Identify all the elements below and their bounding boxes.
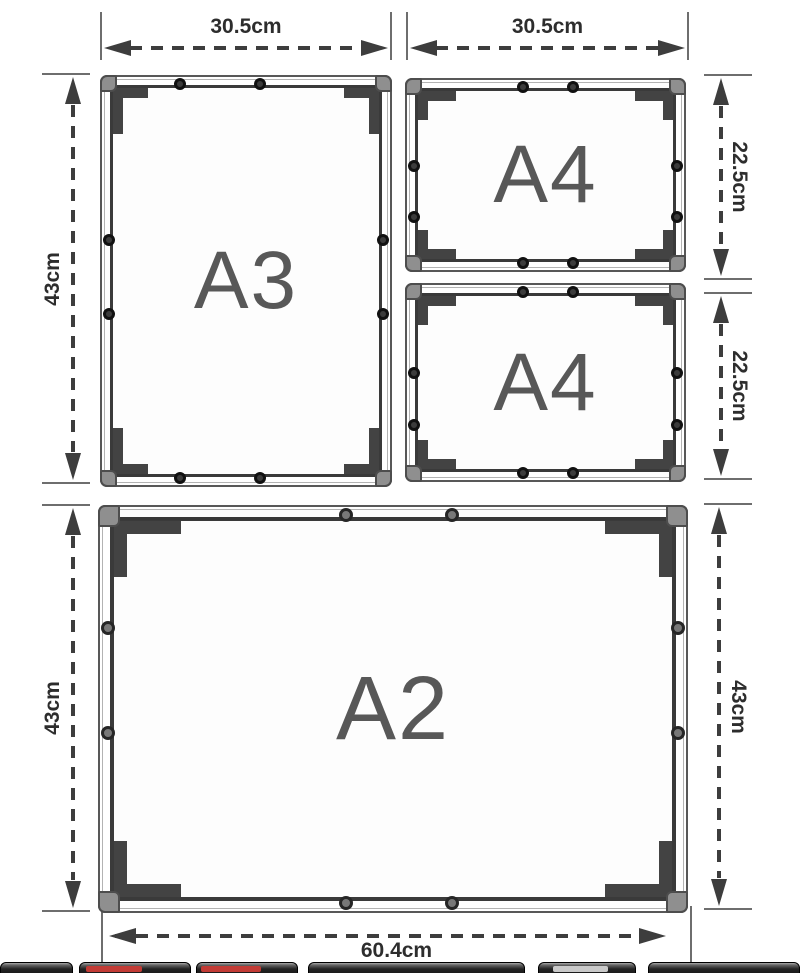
corner-cap bbox=[405, 78, 422, 95]
dimension-endcap bbox=[704, 503, 752, 505]
corner-cap bbox=[98, 891, 120, 913]
corner-bracket bbox=[113, 428, 123, 474]
dimension-dashed-line bbox=[130, 46, 362, 50]
strip-thumbnail bbox=[79, 962, 191, 973]
corner-bracket bbox=[659, 841, 672, 897]
frame-a3: A3 bbox=[100, 75, 392, 487]
arrow-up-icon bbox=[713, 78, 729, 105]
screw-icon bbox=[174, 78, 186, 90]
arrow-down-icon bbox=[713, 249, 729, 276]
dimension-a4-width: 30.5cm bbox=[406, 10, 689, 62]
arrow-right-icon bbox=[361, 40, 388, 56]
arrow-left-icon bbox=[104, 40, 131, 56]
dimension-dashed-line bbox=[71, 536, 75, 880]
screw-icon bbox=[567, 467, 579, 479]
frame-size-label: A4 bbox=[493, 342, 597, 424]
strip-thumbnail bbox=[196, 962, 298, 973]
dimension-label: 43cm bbox=[726, 680, 750, 734]
corner-cap bbox=[100, 470, 117, 487]
arrow-up-icon bbox=[65, 508, 81, 535]
dimension-label: 22.5cm bbox=[727, 350, 751, 421]
strip-thumbnail bbox=[0, 962, 73, 973]
corner-bracket bbox=[418, 296, 428, 325]
corner-cap bbox=[375, 470, 392, 487]
strip-red-accent bbox=[86, 966, 142, 972]
screw-icon bbox=[671, 160, 683, 172]
corner-bracket bbox=[418, 230, 428, 259]
strip-thumbnail bbox=[648, 962, 800, 973]
arrow-left-icon bbox=[410, 40, 437, 56]
dimension-endcap bbox=[42, 504, 90, 506]
dimension-label: 22.5cm bbox=[727, 141, 751, 212]
screw-icon bbox=[517, 467, 529, 479]
frame-a2: A2 bbox=[98, 505, 688, 913]
corner-bracket bbox=[114, 841, 127, 897]
corner-bracket bbox=[369, 428, 379, 474]
corner-cap bbox=[669, 255, 686, 272]
dimension-dashed-line bbox=[717, 535, 721, 878]
screw-icon bbox=[103, 234, 115, 246]
screw-icon bbox=[517, 257, 529, 269]
dimension-label: 60.4cm bbox=[101, 939, 692, 963]
corner-bracket bbox=[113, 88, 123, 134]
arrow-right-icon bbox=[658, 40, 685, 56]
screw-icon bbox=[671, 621, 685, 635]
arrow-up-icon bbox=[65, 77, 81, 104]
dimension-endcap bbox=[704, 292, 752, 294]
dimension-dashed-line bbox=[436, 46, 659, 50]
corner-bracket bbox=[418, 440, 428, 469]
screw-icon bbox=[103, 308, 115, 320]
dimension-label: 30.5cm bbox=[100, 15, 392, 39]
dimension-endcap bbox=[42, 910, 90, 912]
size-diagram: 30.5cm 30.5cm 43cm 22.5cm 22.5cm bbox=[0, 0, 800, 973]
corner-bracket bbox=[418, 91, 428, 120]
dimension-dashed-line bbox=[115, 934, 658, 938]
arrow-down-icon bbox=[65, 881, 81, 908]
dimension-endcap bbox=[704, 478, 752, 480]
frame-size-label: A2 bbox=[336, 664, 450, 754]
frame-inner-panel: A2 bbox=[110, 517, 676, 901]
frame-inner-panel: A3 bbox=[110, 85, 382, 477]
screw-icon bbox=[254, 78, 266, 90]
screw-icon bbox=[408, 419, 420, 431]
dimension-a2-height-right: 43cm bbox=[702, 503, 754, 910]
screw-icon bbox=[445, 896, 459, 910]
corner-cap bbox=[100, 75, 117, 92]
strip-thumbnail bbox=[308, 962, 525, 973]
corner-cap bbox=[375, 75, 392, 92]
bottom-image-strip bbox=[0, 962, 800, 973]
dimension-a4-bottom-height: 22.5cm bbox=[702, 292, 754, 480]
screw-icon bbox=[174, 472, 186, 484]
corner-cap bbox=[666, 505, 688, 527]
corner-cap bbox=[405, 255, 422, 272]
dimension-endcap bbox=[704, 74, 752, 76]
dimension-a2-width: 60.4cm bbox=[101, 906, 692, 964]
screw-icon bbox=[671, 419, 683, 431]
screw-icon bbox=[567, 286, 579, 298]
arrow-down-icon bbox=[65, 453, 81, 480]
arrow-down-icon bbox=[711, 879, 727, 906]
strip-gray-accent bbox=[553, 966, 608, 972]
corner-bracket bbox=[663, 296, 673, 325]
screw-icon bbox=[101, 621, 115, 635]
dimension-endcap bbox=[42, 482, 90, 484]
corner-bracket bbox=[663, 91, 673, 120]
dimension-dashed-line bbox=[719, 324, 723, 448]
screw-icon bbox=[517, 286, 529, 298]
frame-a4-top: A4 bbox=[405, 78, 686, 272]
screw-icon bbox=[671, 726, 685, 740]
screw-icon bbox=[339, 896, 353, 910]
strip-thumbnail bbox=[538, 962, 636, 973]
dimension-a3-height: 43cm bbox=[40, 73, 92, 484]
screw-icon bbox=[671, 367, 683, 379]
arrow-up-icon bbox=[711, 507, 727, 534]
dimension-a2-height-left: 43cm bbox=[40, 504, 92, 912]
screw-icon bbox=[377, 234, 389, 246]
screw-icon bbox=[101, 726, 115, 740]
corner-bracket bbox=[659, 521, 672, 577]
corner-cap bbox=[405, 283, 422, 300]
dimension-a3-width: 30.5cm bbox=[100, 10, 392, 62]
corner-cap bbox=[669, 283, 686, 300]
corner-bracket bbox=[369, 88, 379, 134]
corner-cap bbox=[666, 891, 688, 913]
frame-a4-bottom: A4 bbox=[405, 283, 686, 482]
strip-red-accent bbox=[201, 966, 261, 972]
screw-icon bbox=[567, 81, 579, 93]
corner-cap bbox=[669, 78, 686, 95]
dimension-endcap bbox=[704, 278, 752, 280]
screw-icon bbox=[377, 308, 389, 320]
screw-icon bbox=[408, 211, 420, 223]
frame-inner-panel: A4 bbox=[415, 88, 676, 262]
dimension-label: 30.5cm bbox=[406, 15, 689, 39]
screw-icon bbox=[408, 367, 420, 379]
screw-icon bbox=[339, 508, 353, 522]
screw-icon bbox=[671, 211, 683, 223]
frame-size-label: A4 bbox=[493, 134, 597, 216]
frame-size-label: A3 bbox=[194, 240, 298, 322]
dimension-label: 43cm bbox=[41, 252, 65, 306]
dimension-dashed-line bbox=[719, 106, 723, 248]
corner-cap bbox=[405, 465, 422, 482]
screw-icon bbox=[254, 472, 266, 484]
dimension-a4-top-height: 22.5cm bbox=[702, 74, 754, 280]
screw-icon bbox=[567, 257, 579, 269]
screw-icon bbox=[445, 508, 459, 522]
arrow-down-icon bbox=[713, 449, 729, 476]
corner-cap bbox=[669, 465, 686, 482]
corner-cap bbox=[98, 505, 120, 527]
dimension-label: 43cm bbox=[41, 681, 65, 735]
screw-icon bbox=[408, 160, 420, 172]
dimension-endcap bbox=[42, 73, 90, 75]
screw-icon bbox=[517, 81, 529, 93]
corner-bracket bbox=[114, 521, 127, 577]
dimension-dashed-line bbox=[71, 105, 75, 452]
frame-inner-panel: A4 bbox=[415, 293, 676, 472]
arrow-up-icon bbox=[713, 296, 729, 323]
dimension-endcap bbox=[704, 908, 752, 910]
